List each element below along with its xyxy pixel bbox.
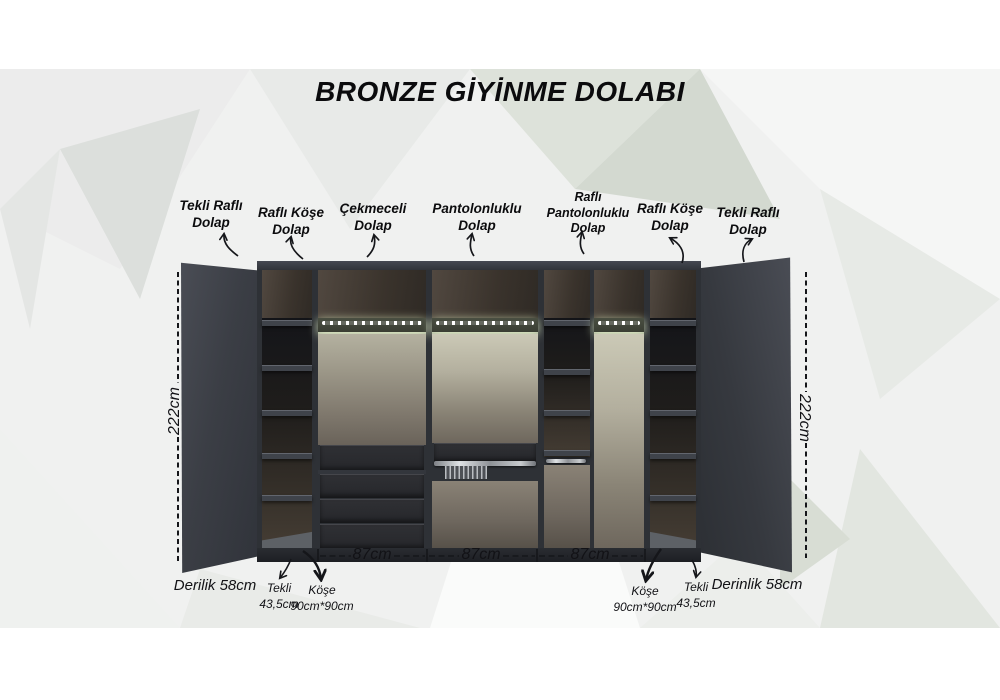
- corner-dim-left: Köşe 90cm*90cm: [282, 583, 362, 614]
- label-tekli-rafli-dolap-right: Tekli Raflı Dolap: [693, 204, 803, 239]
- width-dim-3: 87cm: [568, 546, 612, 564]
- curved-arrow: [646, 549, 661, 580]
- depth-dim-right: Derinlik 58cm: [687, 576, 827, 593]
- product-diagram: BRONZE GİYİNME DOLABI: [0, 0, 1000, 700]
- curved-arrow: [470, 234, 474, 256]
- curved-arrow: [743, 239, 752, 262]
- height-dim-left: 222cm: [166, 387, 184, 435]
- curved-arrow: [367, 235, 375, 257]
- annotation-layer: [0, 0, 1000, 700]
- curved-arrow: [692, 560, 696, 577]
- curved-arrow: [280, 559, 291, 578]
- height-dim-right: 222cm: [795, 394, 813, 442]
- curved-arrow: [291, 237, 303, 259]
- label-pantolonluklu-dolap: Pantolonluklu Dolap: [420, 200, 534, 235]
- width-dim-2: 87cm: [459, 546, 503, 564]
- label-cekmeceli-dolap: Çekmeceli Dolap: [318, 200, 428, 235]
- width-dim-1: 87cm: [350, 546, 394, 564]
- curved-arrow: [670, 238, 683, 263]
